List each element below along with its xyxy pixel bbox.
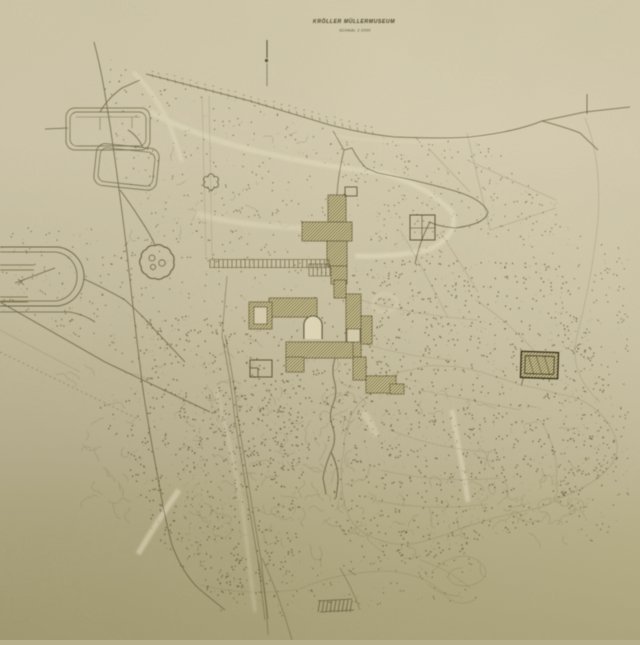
svg-text:KRÖLLER MÜLLERMUSEUM: KRÖLLER MÜLLERMUSEUM	[313, 18, 395, 25]
svg-text:SCHAAL 1:1000: SCHAAL 1:1000	[339, 29, 371, 33]
